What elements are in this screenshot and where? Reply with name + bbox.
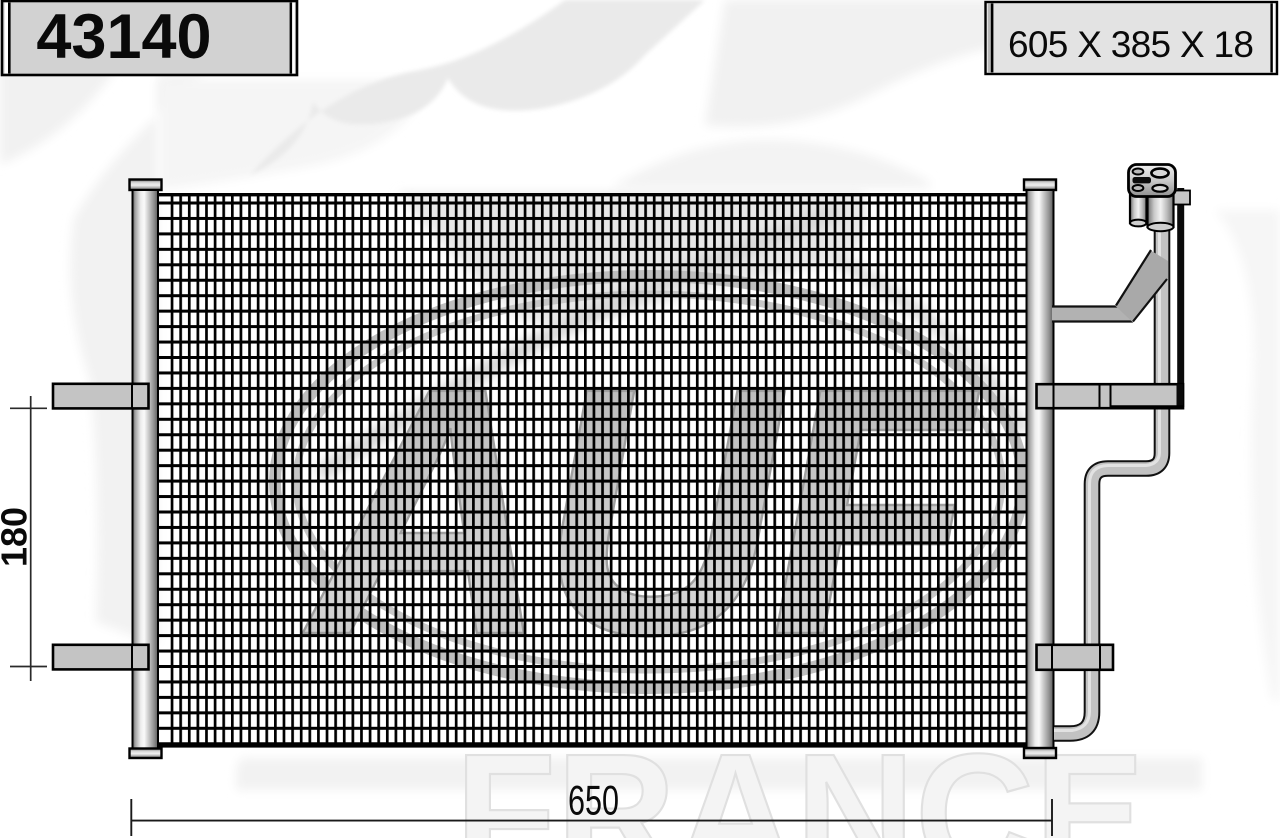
svg-text:650: 650 [568, 777, 619, 824]
svg-text:605 X 385 X 18: 605 X 385 X 18 [1008, 24, 1254, 65]
svg-text:43140: 43140 [36, 2, 211, 72]
svg-text:180: 180 [0, 507, 35, 567]
